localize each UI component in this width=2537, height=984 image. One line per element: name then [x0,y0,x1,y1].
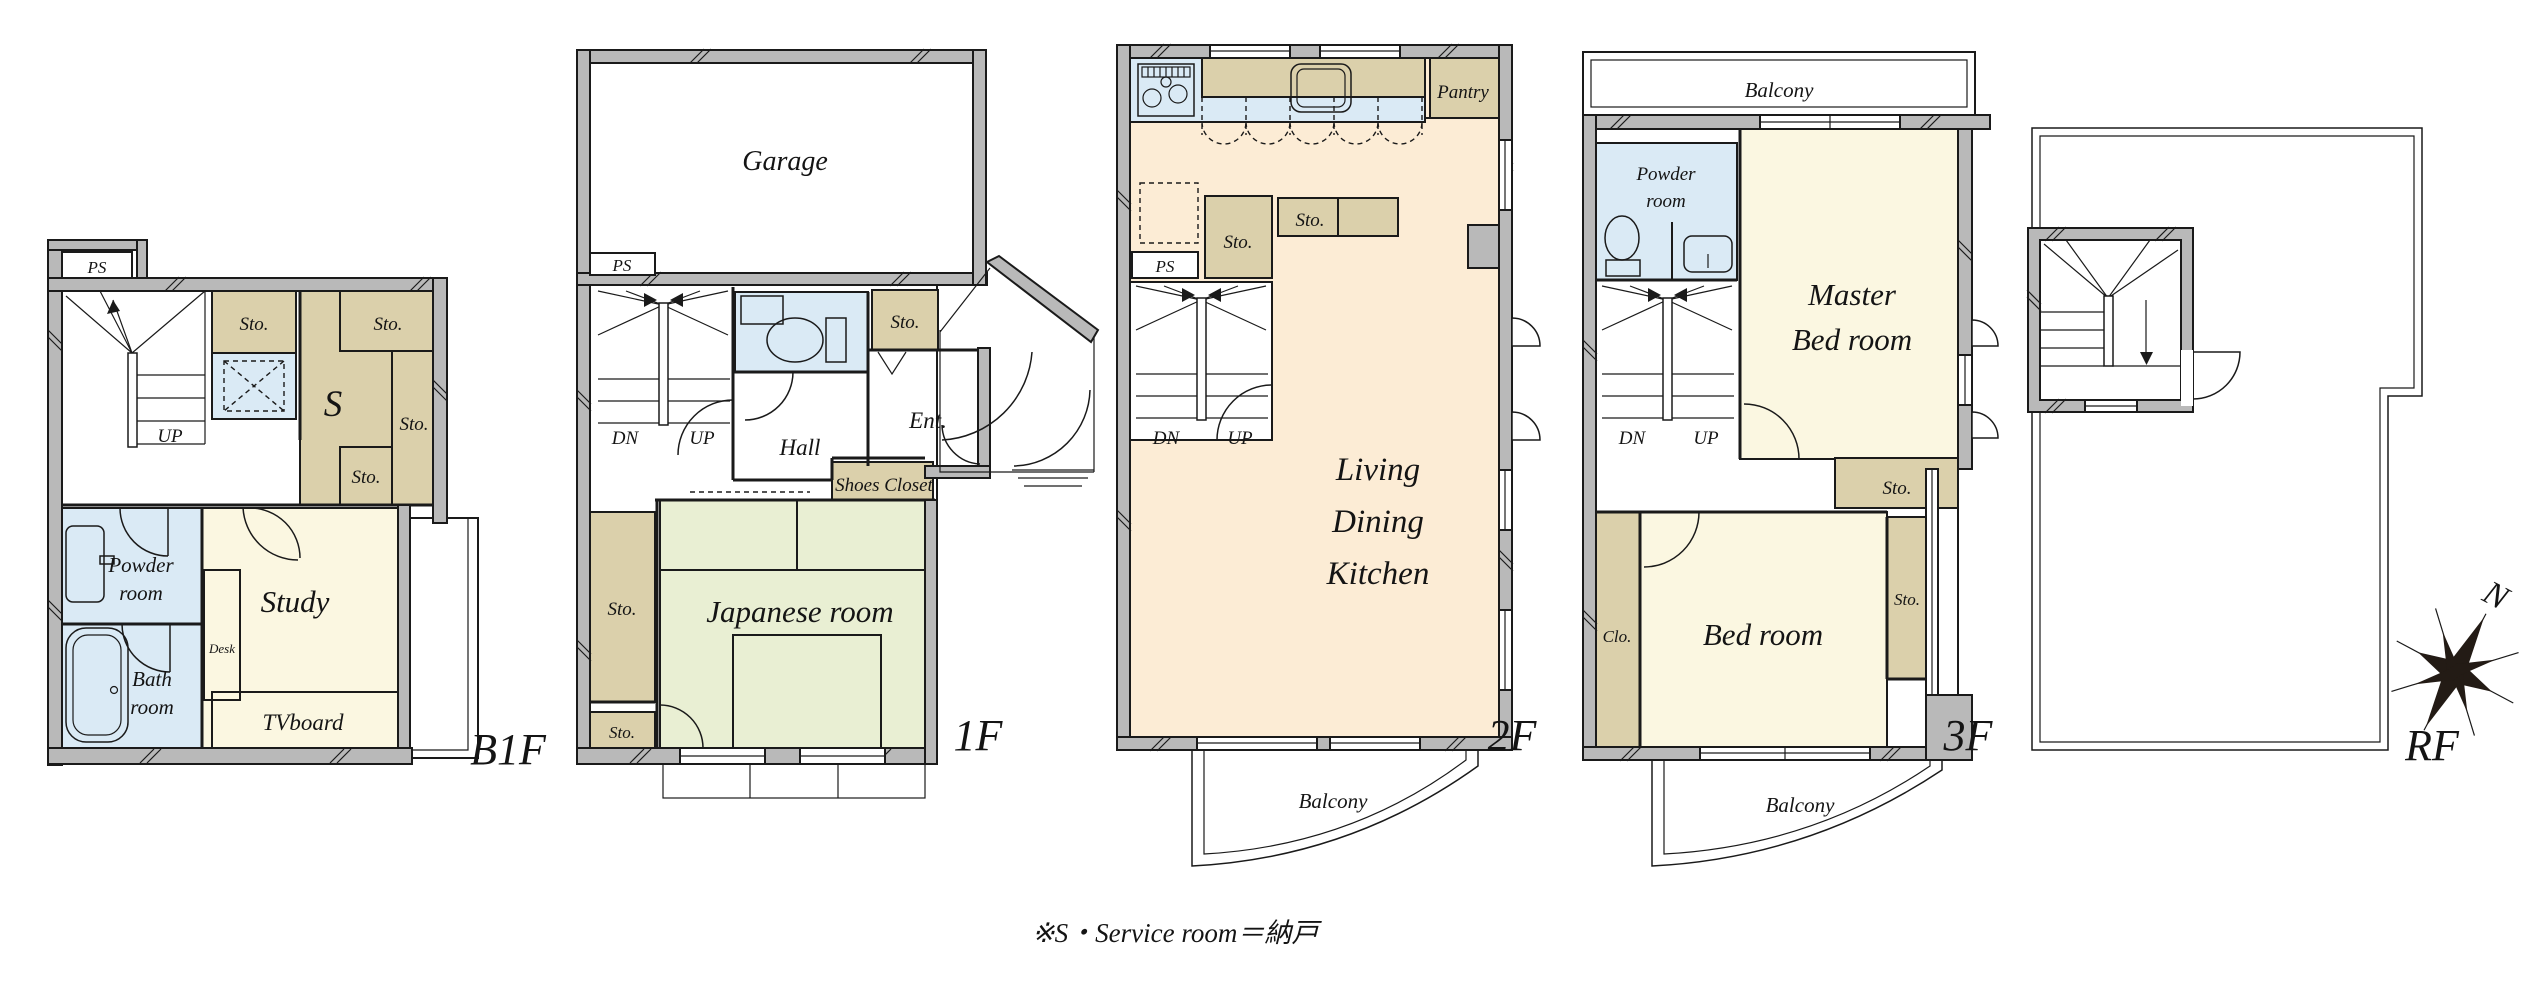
f3-right-door-flap-1 [1972,320,1998,346]
f2-label-balcony: Balcony [1299,789,1368,813]
f2-label-ldk-3: Kitchen [1326,556,1430,592]
f3-label-balcony-top: Balcony [1745,78,1814,102]
f3-floor-label: 3F [1943,711,1994,760]
f1-label-ent: Ent. [908,408,947,433]
f1-label-garage: Garage [742,146,828,177]
f2-label-up: UP [1227,428,1253,449]
f1-deck [663,764,925,798]
f2-floor-label: 2F [1488,711,1538,760]
f1-label-sto-1: Sto. [890,312,919,333]
f3-label-sto-1: Sto. [1882,478,1911,499]
f3-right-door-flap-2 [1972,412,1998,438]
b1f-label-desk: Desk [208,641,235,656]
f2-label-pantry: Pantry [1436,82,1489,103]
rf-roof-outline [2032,128,2422,750]
b1f-label-ps: PS [87,258,107,277]
b1f-floor-label: B1F [470,725,547,774]
rf-floor-label: RF [2404,721,2460,770]
b1f-label-sto-4: Sto. [351,467,380,488]
f3-label-powder-1: Powder [1635,164,1696,185]
b1f-label-tvboard: TVboard [263,710,344,735]
b1f-rooms [62,291,478,758]
b1f-label-study: Study [261,584,330,619]
f1-room-toilet [735,292,868,372]
f3-rooms [1596,129,1958,748]
f3-label-closet: Clo. [1603,627,1632,646]
compass-north-label: N [2476,573,2516,618]
f3-label-balcony-bottom: Balcony [1766,793,1835,817]
service-room-note: ※S・Service room＝納戸 [1032,918,1322,948]
f3-label-sto-2: Sto. [1894,590,1920,609]
f2-label-ps: PS [1155,257,1175,276]
f3-label-powder-2: room [1646,191,1685,212]
b1f-label-sto-3: Sto. [399,414,428,435]
f1-floor-label: 1F [954,711,1004,760]
f2-label-ldk-2: Dining [1331,504,1424,540]
b1f-label-up: UP [157,426,183,447]
floor-2f: Pantry PS Sto. Sto. DN UP Living Dining … [1117,44,1540,866]
b1f-label-powder-2: room [119,581,163,605]
f2-label-sto-2: Sto. [1295,210,1324,231]
f1-label-sto-2: Sto. [607,599,636,620]
floor-plan-sheet: PS Sto. Sto. Sto. Sto. S UP Powder room … [0,0,2537,984]
rf-door-arc [2193,352,2240,399]
f1-label-shoes-closet: Shoes Closet [835,475,933,496]
f2-label-ldk-1: Living [1335,452,1420,488]
f1-label-sto-3: Sto. [609,723,635,742]
floor-1f: Garage PS DN UP Sto. Ent. Hall Shoes Clo… [577,49,1098,798]
b1f-label-bath-1: Bath [132,667,172,691]
f3-label-bedroom: Bed room [1703,617,1823,652]
f3-label-dn: DN [1618,428,1647,449]
f3-label-master-2: Bed room [1792,322,1912,357]
b1f-label-bath-2: room [130,695,174,719]
floor-3f: Balcony Powder room Master Bed room DN U… [1583,52,1998,866]
f1-label-hall: Hall [779,435,821,460]
f1-label-dn: DN [611,428,640,449]
f3-label-up: UP [1693,428,1719,449]
b1f-label-service: S [324,384,343,425]
rf-stair-enclosure [2027,227,2240,413]
b1f-label-powder-1: Powder [107,553,174,577]
f1-porch-roof-wall [987,256,1098,342]
f2-label-dn: DN [1152,428,1181,449]
f2-label-sto-1: Sto. [1223,232,1252,253]
f3-label-master-1: Master [1807,277,1897,312]
floor-b1f: PS Sto. Sto. Sto. Sto. S UP Powder room … [48,240,547,774]
f1-porch [940,268,1094,486]
b1f-label-sto-2: Sto. [373,314,402,335]
floor-rf: N RF [2027,128,2537,770]
f2-right-door-flap-1 [1512,318,1540,346]
f1-label-ps: PS [612,256,632,275]
b1f-label-sto-1: Sto. [239,314,268,335]
f2-right-door-flap-2 [1512,412,1540,440]
f2-rooms [1130,58,1499,737]
f1-label-up: UP [689,428,715,449]
f1-label-japanese-room: Japanese room [706,594,893,629]
